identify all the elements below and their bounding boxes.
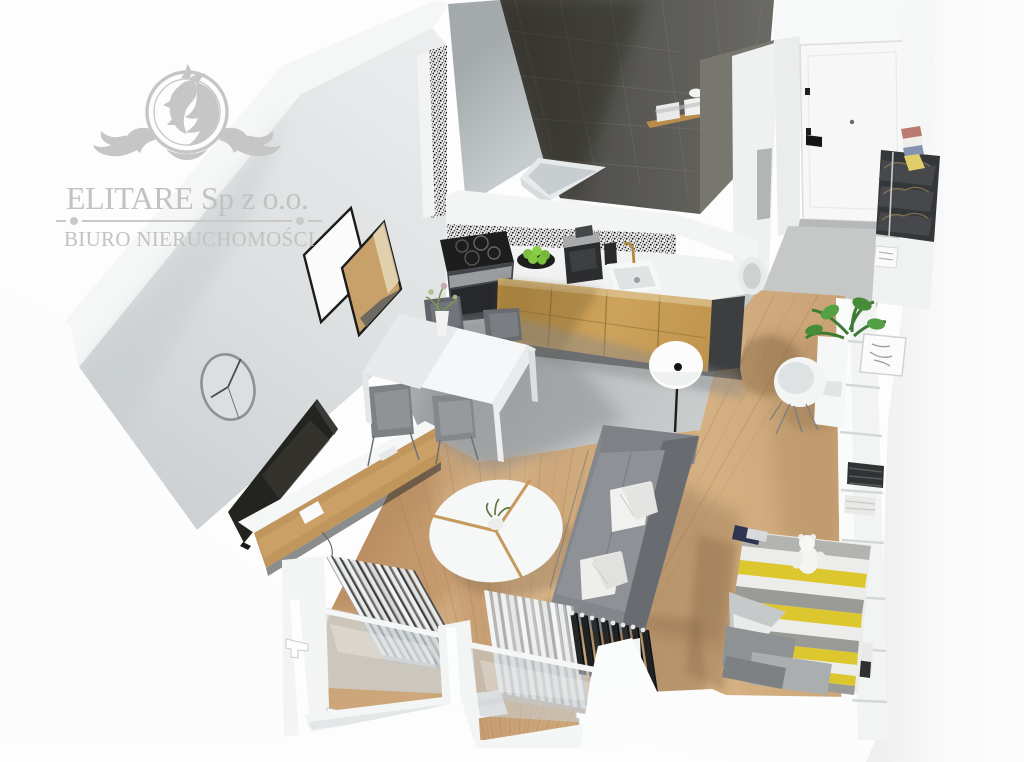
svg-text:BIURO NIERUCHOMOŚCI: BIURO NIERUCHOMOŚCI (64, 227, 316, 251)
svg-text:ELITARE Sp z o.o.: ELITARE Sp z o.o. (66, 180, 310, 216)
